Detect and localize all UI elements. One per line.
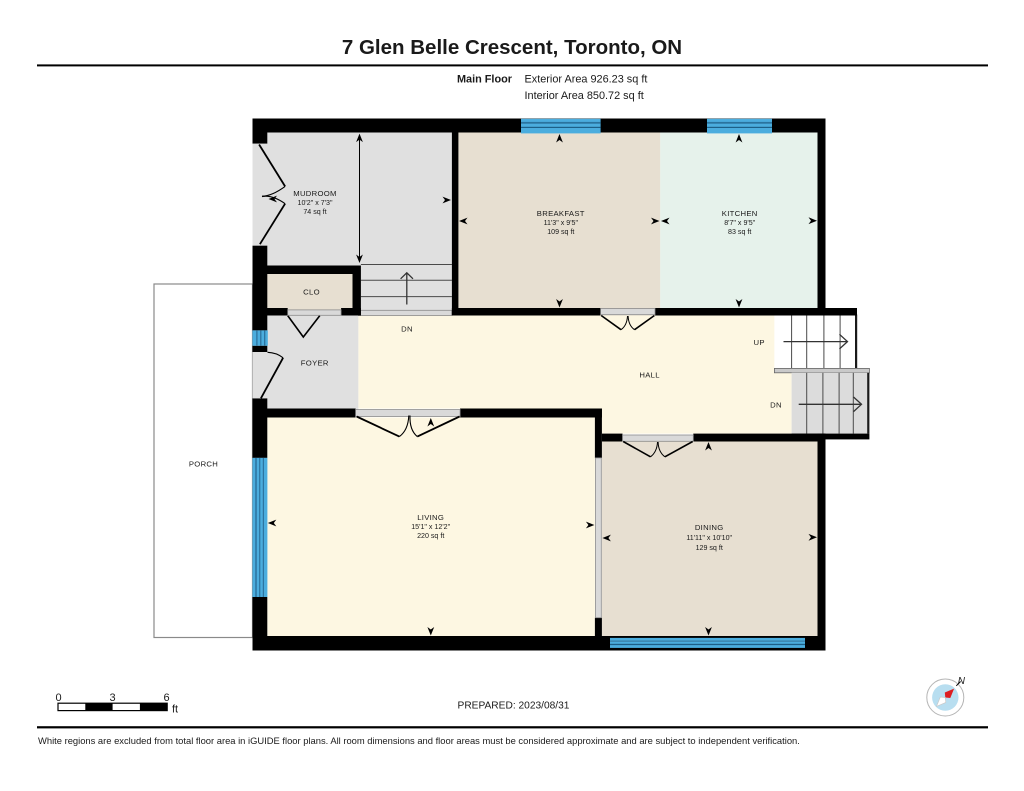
svg-text:FOYER: FOYER	[301, 359, 329, 368]
svg-text:LIVING: LIVING	[417, 513, 444, 522]
svg-text:109 sq ft: 109 sq ft	[547, 228, 574, 236]
svg-text:7 Glen Belle Crescent, Toronto: 7 Glen Belle Crescent, Toronto, ON	[342, 36, 682, 59]
svg-text:N: N	[958, 676, 966, 687]
svg-text:8'7" x 9'5": 8'7" x 9'5"	[724, 219, 755, 227]
svg-text:15'1" x 12'2": 15'1" x 12'2"	[411, 523, 450, 531]
svg-text:0: 0	[55, 692, 61, 704]
svg-text:White regions are excluded fro: White regions are excluded from total fl…	[38, 735, 800, 746]
svg-text:PREPARED: 2023/08/31: PREPARED: 2023/08/31	[458, 701, 570, 712]
svg-text:129 sq ft: 129 sq ft	[696, 544, 723, 552]
svg-text:HALL: HALL	[639, 371, 660, 380]
svg-text:BREAKFAST: BREAKFAST	[537, 209, 585, 218]
svg-text:Interior Area 850.72 sq ft: Interior Area 850.72 sq ft	[525, 90, 644, 102]
svg-text:KITCHEN: KITCHEN	[722, 209, 758, 218]
svg-text:ft: ft	[172, 704, 178, 716]
svg-text:74 sq ft: 74 sq ft	[303, 208, 326, 216]
svg-text:3: 3	[110, 692, 116, 704]
svg-text:6: 6	[164, 692, 170, 704]
svg-text:Main Floor: Main Floor	[457, 74, 513, 86]
svg-text:Exterior Area 926.23 sq ft: Exterior Area 926.23 sq ft	[525, 74, 648, 86]
svg-text:DN: DN	[401, 325, 413, 334]
svg-text:11'3" x 9'5": 11'3" x 9'5"	[544, 219, 579, 227]
svg-text:10'2" x 7'3": 10'2" x 7'3"	[298, 199, 333, 207]
svg-text:CLO: CLO	[303, 288, 320, 297]
svg-text:220 sq ft: 220 sq ft	[417, 532, 444, 540]
svg-text:83 sq ft: 83 sq ft	[728, 228, 751, 236]
svg-text:PORCH: PORCH	[189, 460, 218, 469]
svg-text:MUDROOM: MUDROOM	[293, 189, 337, 198]
svg-text:DN: DN	[770, 401, 782, 410]
svg-text:11'11" x 10'10": 11'11" x 10'10"	[686, 534, 732, 542]
svg-text:DINING: DINING	[695, 523, 724, 532]
svg-text:UP: UP	[754, 338, 765, 347]
